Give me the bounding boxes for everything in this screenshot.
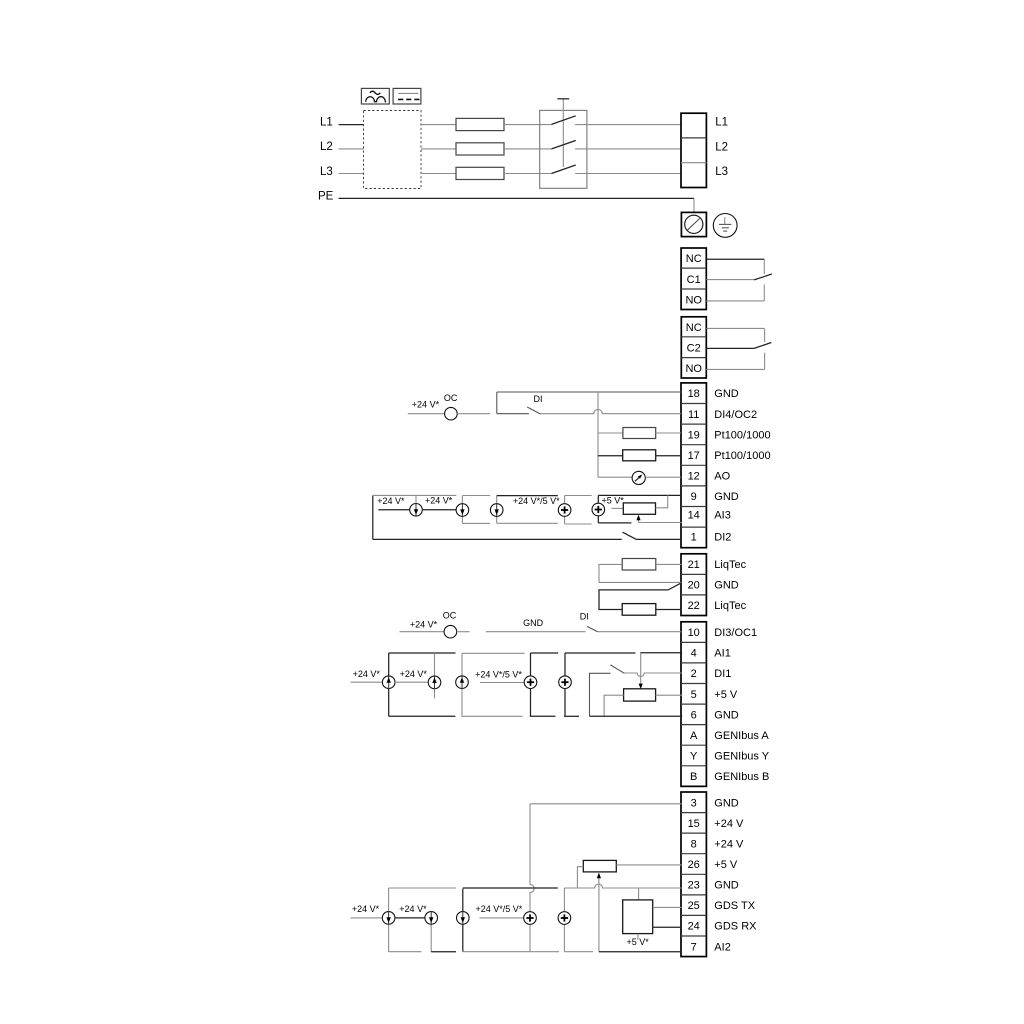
svg-text:7: 7 [691,941,697,953]
svg-text:17: 17 [688,450,700,462]
svg-text:18: 18 [688,388,700,400]
svg-text:1: 1 [691,531,697,543]
svg-text:A: A [690,730,698,742]
svg-text:+5 V: +5 V [714,859,738,871]
svg-text:23: 23 [688,880,700,892]
svg-text:11: 11 [688,409,699,421]
svg-text:15: 15 [688,818,700,830]
svg-text:AO: AO [714,471,730,483]
svg-text:L3: L3 [320,166,333,178]
svg-text:2: 2 [691,668,697,680]
svg-text:+24 V*: +24 V* [400,669,428,679]
svg-text:NC: NC [686,253,702,265]
svg-text:14: 14 [688,509,700,521]
svg-text:L2: L2 [715,141,728,153]
svg-text:+24 V*: +24 V* [352,904,380,914]
svg-text:AI2: AI2 [714,941,731,953]
svg-text:+24 V*: +24 V* [377,496,405,506]
svg-text:20: 20 [688,580,700,592]
svg-text:+24 V*/5 V*: +24 V*/5 V* [513,496,560,506]
svg-text:B: B [690,771,697,783]
svg-text:26: 26 [688,859,700,871]
svg-text:21: 21 [688,559,700,571]
svg-text:LiqTec: LiqTec [714,559,746,571]
svg-text:DI3/OC1: DI3/OC1 [714,627,757,639]
svg-text:+24 V: +24 V [714,818,744,830]
svg-text:6: 6 [691,709,697,721]
svg-text:25: 25 [688,900,700,912]
svg-text:DI: DI [580,612,589,622]
svg-text:Y: Y [690,751,698,763]
svg-text:L1: L1 [715,117,728,129]
svg-text:AI1: AI1 [714,648,731,660]
svg-text:C1: C1 [687,274,701,286]
svg-text:8: 8 [691,838,697,850]
svg-text:GENIbus A: GENIbus A [714,730,769,742]
svg-text:12: 12 [688,471,700,483]
svg-text:GENIbus B: GENIbus B [714,771,769,783]
svg-text:DI: DI [534,394,543,404]
svg-text:+24 V*: +24 V* [353,669,381,679]
svg-text:+5 V: +5 V [714,689,738,701]
svg-text:GND: GND [523,618,544,628]
svg-text:GND: GND [714,491,739,503]
svg-text:10: 10 [688,627,700,639]
svg-text:+24 V: +24 V [714,838,744,850]
svg-text:NO: NO [685,294,702,306]
svg-text:OC: OC [444,393,458,403]
svg-text:LiqTec: LiqTec [714,600,746,612]
svg-text:22: 22 [688,600,700,612]
svg-text:PE: PE [318,191,334,203]
svg-text:NC: NC [686,322,702,334]
svg-text:+24 V*: +24 V* [410,620,438,630]
svg-text:24: 24 [688,921,700,933]
svg-text:DI1: DI1 [714,668,731,680]
svg-text:L2: L2 [320,141,333,153]
svg-text:OC: OC [443,611,457,621]
svg-text:Pt100/1000: Pt100/1000 [714,429,770,441]
svg-text:+5 V*: +5 V* [627,937,650,947]
svg-text:GND: GND [714,580,739,592]
svg-text:DI2: DI2 [714,531,731,543]
svg-text:AI3: AI3 [714,509,731,521]
svg-text:GDS TX: GDS TX [714,900,755,912]
svg-text:GND: GND [714,797,739,809]
svg-text:GDS RX: GDS RX [714,921,757,933]
svg-text:+24 V*/5 V*: +24 V*/5 V* [476,904,523,914]
svg-text:3: 3 [691,797,697,809]
svg-text:L1: L1 [320,116,333,128]
svg-text:+24 V*/5 V*: +24 V*/5 V* [475,669,522,679]
svg-text:+24 V*: +24 V* [425,496,453,506]
svg-text:L3: L3 [715,166,728,178]
svg-text:NO: NO [685,363,702,375]
svg-text:GND: GND [714,880,739,892]
svg-text:+5 V*: +5 V* [602,496,625,506]
svg-text:C2: C2 [687,343,701,355]
svg-text:4: 4 [691,648,697,660]
svg-text:Pt100/1000: Pt100/1000 [714,450,770,462]
svg-text:GND: GND [714,388,739,400]
svg-text:+24 V*: +24 V* [412,400,440,410]
svg-text:9: 9 [691,491,697,503]
svg-text:+24 V*: +24 V* [399,904,427,914]
svg-text:5: 5 [691,689,697,701]
svg-text:GENIbus Y: GENIbus Y [714,751,769,763]
svg-text:GND: GND [714,709,739,721]
svg-text:19: 19 [688,429,700,441]
svg-text:DI4/OC2: DI4/OC2 [714,409,757,421]
